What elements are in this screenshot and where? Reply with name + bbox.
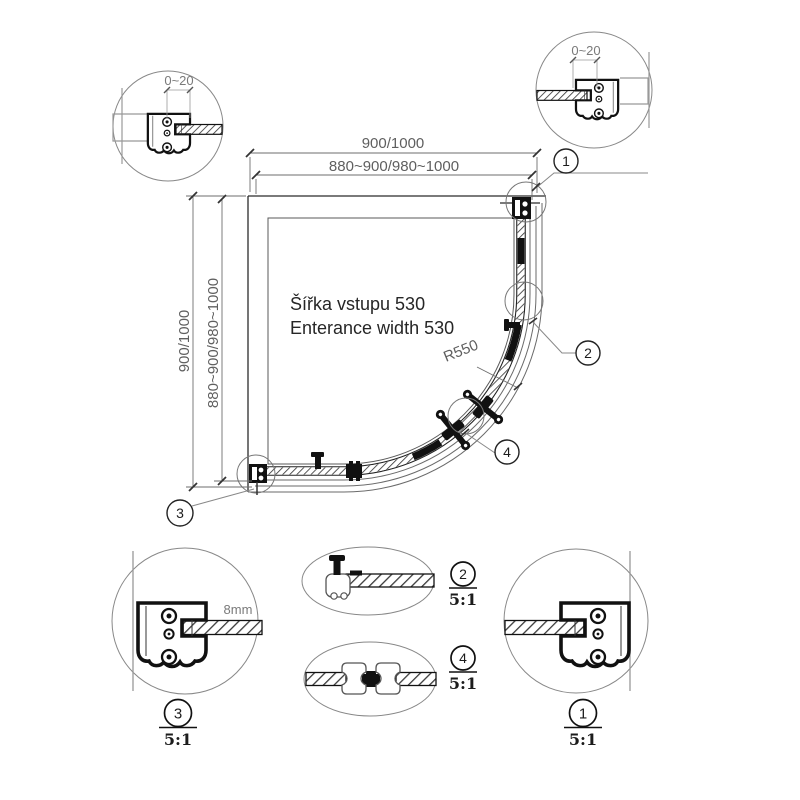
connector-core <box>366 671 376 687</box>
detail-3-number: 3 <box>174 706 182 723</box>
curved-glass-band <box>263 213 521 471</box>
dim-left-outer: 900/1000 <box>176 310 193 373</box>
dim-top-outer: 900/1000 <box>362 135 425 152</box>
detail-2-label: 2 5:1 <box>449 562 477 609</box>
shower-enclosure-drawing: 900/1000 880~900/980~1000 900/1000 880~9… <box>0 0 800 800</box>
dim-left-inner: 880~900/980~1000 <box>205 278 222 408</box>
wall-profile-icon <box>148 114 190 153</box>
detail-2-scale: 5:1 <box>449 590 477 609</box>
detail-4-number: 4 <box>459 650 467 666</box>
glass-thickness-label: 8mm <box>224 602 253 617</box>
glass-panel <box>306 673 346 686</box>
glass-panel <box>537 91 587 101</box>
main-plan-view: 900/1000 880~900/980~1000 900/1000 880~9… <box>167 135 648 526</box>
corner-profile-top-right <box>512 197 531 219</box>
detail-view-wall-right: 0~20 <box>536 32 652 148</box>
entrance-width-en: Enterance width 530 <box>290 318 454 338</box>
radius-label: R550 <box>441 337 481 366</box>
technical-drawing-page: 900/1000 880~900/980~1000 900/1000 880~9… <box>0 0 800 800</box>
detail-view-3: 8mm 3 5:1 <box>112 548 262 749</box>
adjust-dim-right-label: 0~20 <box>571 43 600 58</box>
callout-2-number: 2 <box>584 345 592 361</box>
door-edge-profile <box>346 461 362 481</box>
tray-inner-outline <box>268 218 514 464</box>
detail-view-4: 4 5:1 <box>304 642 477 716</box>
detail-3-scale: 5:1 <box>164 730 192 749</box>
glass-panel <box>183 621 262 635</box>
detail-4-scale: 5:1 <box>449 674 477 693</box>
corner-profile-bottom-left <box>249 464 267 483</box>
detail-3-label: 3 5:1 <box>159 700 197 750</box>
glass-panel <box>346 574 434 587</box>
detail-view-wall-left: 0~20 <box>113 71 223 181</box>
callout-4-number: 4 <box>503 444 511 460</box>
wall-profile-icon <box>561 603 629 667</box>
detail-view-2: 2 5:1 <box>302 547 477 615</box>
callout-3-number: 3 <box>176 505 184 521</box>
detail-1-label: 1 5:1 <box>564 700 602 750</box>
callout-1: 1 <box>532 149 648 191</box>
detail-1-number: 1 <box>579 706 587 723</box>
glass-panel <box>505 621 584 635</box>
callout-1-number: 1 <box>562 153 570 169</box>
detail-1-scale: 5:1 <box>569 730 597 749</box>
glass-panel <box>396 673 436 686</box>
detail-view-1: 1 5:1 <box>504 549 648 749</box>
wall-profile-icon <box>138 603 206 667</box>
detail-2-number: 2 <box>459 566 467 582</box>
glass-panel <box>176 125 222 135</box>
detail-4-label: 4 5:1 <box>449 646 477 693</box>
dim-top-inner: 880~900/980~1000 <box>329 158 459 175</box>
adjust-dim-left-label: 0~20 <box>164 73 193 88</box>
entrance-width-cs: Šířka vstupu 530 <box>290 293 425 314</box>
